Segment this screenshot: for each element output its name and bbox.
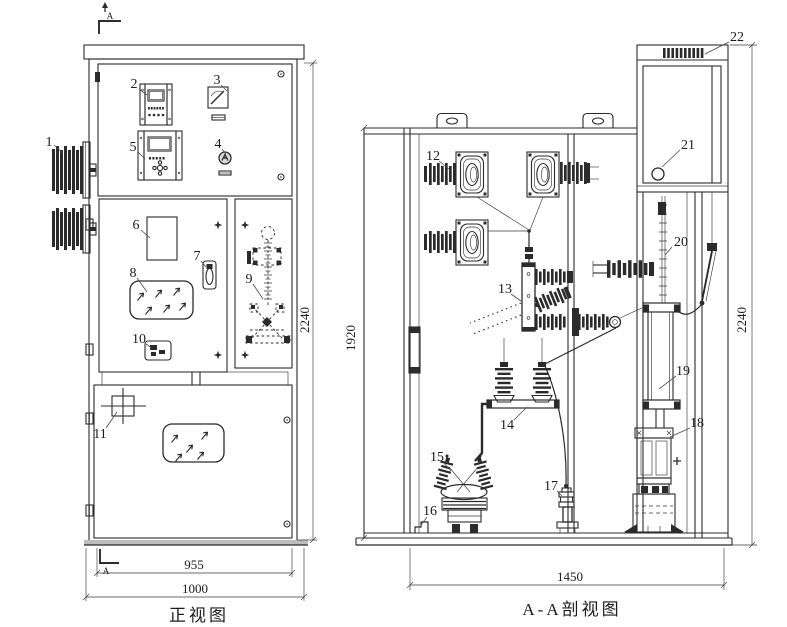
door-lock-handle (101, 388, 146, 424)
part-label-20: 20 (665, 235, 688, 255)
svg-text:1: 1 (46, 135, 53, 150)
svg-text:11: 11 (93, 427, 106, 442)
dim-section-inner-height: 1920 (343, 325, 358, 351)
dim-front-width: 1000 (182, 581, 208, 596)
part-label-11: 11 (93, 412, 117, 442)
instrument-compartment (98, 64, 292, 196)
svg-text:6: 6 (133, 218, 140, 233)
part-label-13: 13 (498, 282, 521, 301)
svg-text:16: 16 (423, 504, 437, 519)
dim-front-height: 2240 (297, 307, 312, 333)
bottom-door (94, 385, 292, 538)
interlock-mechanism-hidden (246, 227, 290, 344)
disconnector-switch (470, 263, 621, 336)
elbow-insulator (593, 260, 654, 278)
dim-section-height: 2240 (734, 307, 749, 333)
svg-text:12: 12 (426, 149, 440, 164)
section-letter-top: A (107, 11, 114, 21)
svg-text:18: 18 (690, 416, 704, 431)
observation-window-middle (130, 281, 193, 319)
rear-top-chamber (637, 45, 728, 192)
section-cut-marker-top: A (99, 2, 121, 34)
svg-text:4: 4 (215, 137, 222, 152)
svg-text:7: 7 (194, 249, 201, 264)
svg-text:8: 8 (130, 266, 137, 281)
wall-bushings (424, 152, 599, 265)
part-label-22: 22 (705, 30, 744, 54)
dim-section-depth: 1450 (557, 569, 583, 584)
busbar-assembly (475, 307, 644, 484)
middle-left-door (99, 199, 227, 372)
engineering-drawing-page: A (0, 0, 787, 627)
part-label-7: 7 (194, 249, 207, 267)
switchgear-drawing: A (0, 0, 787, 627)
part-label-8: 8 (130, 266, 148, 292)
pressure-relief-vent (663, 48, 703, 58)
svg-text:2: 2 (131, 77, 138, 92)
wall-lever-mechanism (676, 192, 717, 314)
section-cut-marker-bottom: A (100, 549, 119, 576)
svg-text:10: 10 (132, 332, 146, 347)
protection-relay-lower (138, 131, 182, 180)
interlock-panel (235, 199, 292, 368)
front-view: A (46, 2, 318, 625)
front-view-caption: 正视图 (169, 606, 229, 625)
voltage-transformer (434, 455, 494, 534)
heater-socket (145, 341, 171, 360)
svg-text:22: 22 (730, 30, 744, 45)
svg-text:3: 3 (214, 73, 221, 88)
svg-text:19: 19 (676, 364, 690, 379)
cabinet-outline (84, 45, 308, 545)
part-label-17: 17 (544, 479, 562, 496)
panel-meter (208, 87, 228, 120)
part-label-19: 19 (659, 364, 690, 389)
section-view: 1920 2240 1450 A-A剖视图 12 13 14 15 16 17 … (343, 30, 757, 619)
bushing-conductors (477, 197, 543, 263)
protection-relay-upper (140, 84, 172, 125)
part-label-21: 21 (662, 138, 695, 167)
nameplate (147, 217, 177, 260)
part-label-4: 4 (215, 137, 227, 154)
wall-bracket (409, 327, 420, 373)
operating-mechanism-box (624, 428, 684, 532)
part-label-9: 9 (246, 272, 264, 299)
svg-text:21: 21 (681, 138, 695, 153)
svg-text:17: 17 (544, 479, 558, 494)
svg-text:13: 13 (498, 282, 512, 297)
part-label-10: 10 (132, 332, 152, 348)
svg-text:9: 9 (246, 272, 253, 287)
section-view-caption: A-A剖视图 (522, 600, 621, 619)
observation-window-bottom (163, 424, 224, 462)
chamber-hole (652, 168, 664, 180)
section-letter-bottom: A (103, 566, 110, 576)
part-label-3: 3 (214, 73, 228, 91)
part-label-5: 5 (130, 140, 146, 159)
svg-text:14: 14 (500, 418, 514, 433)
svg-text:5: 5 (130, 140, 137, 155)
insulating-duct (643, 303, 680, 428)
part-label-16: 16 (421, 504, 437, 525)
front-dimensions: 2240 955 1000 (83, 60, 317, 601)
floor-bracket (415, 522, 428, 533)
control-switch (219, 152, 231, 175)
svg-text:20: 20 (674, 235, 688, 250)
operating-rod (658, 196, 667, 303)
svg-text:15: 15 (430, 450, 444, 465)
connector-band (102, 372, 288, 385)
dim-front-panel-width: 955 (184, 557, 204, 572)
part-label-14: 14 (500, 407, 527, 433)
